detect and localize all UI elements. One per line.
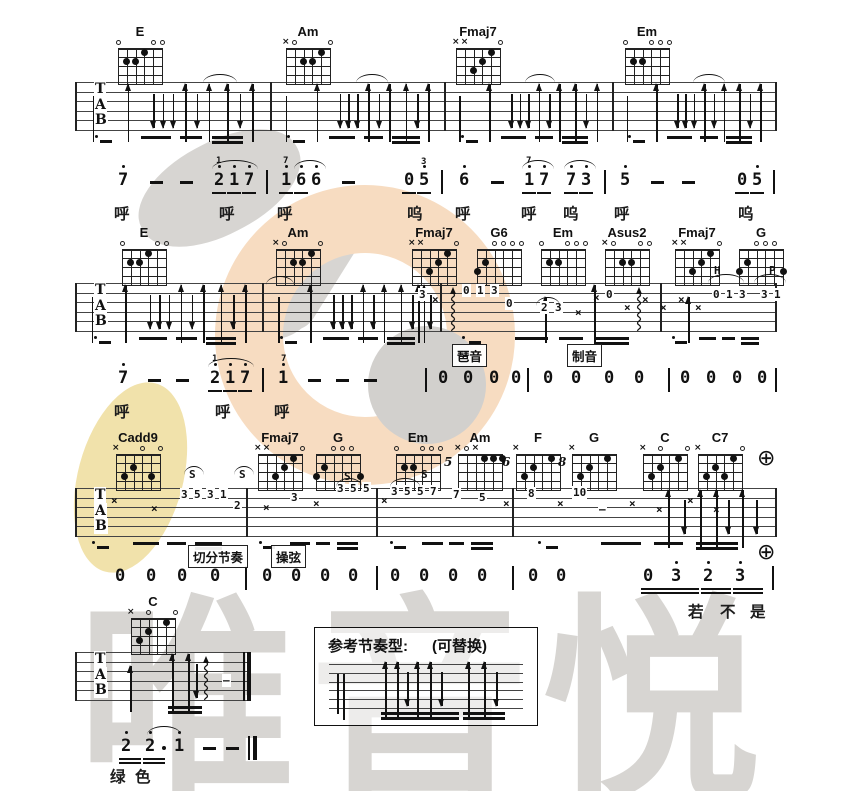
chord-grid-line — [605, 249, 650, 251]
tab-fret-number: 0 — [712, 288, 721, 301]
strum-arrow-down — [192, 295, 194, 329]
strum-arrow-up — [252, 84, 254, 142]
chord-dot — [604, 455, 611, 462]
open-string-mark — [318, 241, 323, 246]
beam — [471, 542, 493, 545]
rest-dot — [461, 135, 464, 138]
tab-letter: T — [94, 651, 106, 667]
mute-string-mark: × — [254, 443, 262, 453]
open-string-mark — [492, 241, 497, 246]
note-digit: 7 — [118, 172, 128, 189]
note-underline — [227, 192, 241, 194]
note-underline — [402, 192, 416, 194]
arrow-head — [360, 284, 366, 292]
chord-grid-line — [116, 490, 161, 491]
open-string-mark — [282, 241, 287, 246]
mute-string-mark: × — [694, 443, 702, 453]
open-string-mark — [510, 241, 515, 246]
tab-symbol: × — [659, 301, 668, 314]
rest-dash — [633, 140, 645, 143]
chord-grid-line — [286, 84, 331, 85]
rest-dash — [97, 546, 109, 549]
chord-grid-line — [572, 463, 617, 464]
note-digit: 6 — [311, 172, 321, 189]
note-underline — [417, 192, 431, 194]
note-barline — [245, 566, 247, 590]
rest-dash — [100, 140, 112, 143]
note-digit: 0 — [543, 370, 553, 387]
tab-fret-number: 3 — [290, 491, 299, 504]
chord-dot — [657, 464, 664, 471]
strum-arrow-down — [714, 94, 716, 128]
chord-dot — [321, 464, 328, 471]
chord-dot — [435, 259, 442, 266]
strum-arrow-down — [240, 94, 242, 128]
beam — [364, 136, 383, 139]
chord-grid-line — [605, 285, 650, 286]
note-digit: 0 — [320, 568, 330, 585]
chord-grid-line — [122, 249, 167, 251]
barline — [512, 488, 514, 537]
tab-symbol: × — [502, 497, 511, 510]
chord-dot — [490, 455, 497, 462]
note-digit: 1 — [229, 172, 239, 189]
octave-dot — [122, 363, 125, 366]
strum-arrow-down — [163, 94, 165, 128]
chord-dot — [132, 58, 139, 65]
arrow-head — [166, 322, 172, 330]
strum-arrow-down — [379, 94, 381, 128]
open-string-mark — [349, 446, 354, 451]
reference-note: (可替换) — [432, 635, 487, 656]
mute-string-mark: × — [417, 238, 425, 248]
chord-name: Em — [533, 225, 593, 240]
tab-symbol: × — [380, 494, 389, 507]
arrow-head — [194, 121, 200, 129]
open-string-mark — [685, 446, 690, 451]
lyric-syllable: 呼 — [219, 202, 235, 224]
open-string-mark — [667, 40, 672, 45]
note-underline — [701, 588, 731, 590]
note-digit: 5 — [419, 172, 429, 189]
note-digit: 0 — [757, 370, 767, 387]
note-digit: 0 — [556, 568, 566, 585]
lyric-syllable: 呼 — [614, 202, 630, 224]
open-string-mark — [519, 241, 524, 246]
chord-grid-line — [458, 463, 503, 464]
open-string-mark — [740, 446, 745, 451]
arrow-head — [376, 121, 382, 129]
chord-grid-line — [316, 472, 361, 473]
note-dash — [336, 379, 349, 382]
chord-dot — [698, 259, 705, 266]
open-string-mark — [116, 40, 121, 45]
chord-grid-line — [739, 249, 784, 251]
chord-grid-line — [116, 463, 161, 464]
staff-line — [329, 664, 523, 665]
tie-arc — [147, 726, 181, 735]
note-digit: 0 — [706, 370, 716, 387]
chord-grid-line — [412, 249, 457, 251]
arpeggio-squiggle — [449, 287, 457, 331]
arrow-head — [747, 121, 753, 129]
chord-dot — [410, 464, 417, 471]
strum-arrow-up — [559, 84, 561, 142]
rest-dash — [394, 546, 406, 549]
note-underline — [119, 758, 141, 760]
chord-dot — [780, 268, 787, 275]
note-underline — [143, 762, 165, 764]
chord-dot — [309, 58, 316, 65]
chord-grid-line — [456, 48, 501, 50]
arrow-head — [382, 661, 388, 669]
strum-arrow-up — [172, 654, 174, 712]
strum-arrow-down — [694, 94, 696, 128]
arrow-head — [674, 121, 680, 129]
strum-arrow-up — [742, 490, 744, 548]
tab-letter: T — [94, 487, 106, 503]
chord-grid-line — [316, 454, 361, 456]
chord-grid-line — [286, 75, 331, 76]
strum-arrow-up — [656, 84, 658, 142]
arrow-head — [681, 527, 687, 535]
beam — [696, 542, 738, 545]
lyric-syllable: 色 — [135, 765, 151, 787]
note-dash — [226, 747, 239, 750]
note-underline — [733, 592, 763, 594]
chord-grid-line — [698, 490, 743, 491]
strum-arrow-up — [724, 84, 726, 142]
chord-dot — [479, 58, 486, 65]
chord-grid-line — [122, 276, 167, 277]
staff-line — [75, 536, 775, 537]
strum-arrow-down — [357, 94, 359, 128]
arrow-head — [594, 83, 600, 91]
arrow-head — [200, 284, 206, 292]
final-barline-thin — [243, 652, 245, 701]
final-barline-thick — [247, 652, 251, 701]
open-string-mark — [155, 241, 160, 246]
tab-symbol: × — [110, 494, 119, 507]
rest-dot — [95, 135, 98, 138]
beam — [206, 342, 236, 345]
chord-dot — [281, 464, 288, 471]
rest-dash — [285, 341, 297, 344]
tab-symbol: × — [574, 306, 583, 319]
barline — [75, 82, 77, 131]
grace-note-digit: 1 — [212, 354, 217, 364]
lyric-syllable: 呜 — [738, 202, 754, 224]
strum-arrow-down — [528, 94, 530, 128]
open-string-mark — [292, 40, 297, 45]
tab-symbol: × — [312, 497, 321, 510]
arrow-head — [665, 489, 671, 497]
arrow-head — [685, 296, 691, 304]
strum-arrow-up — [389, 84, 391, 142]
arrow-head — [701, 83, 707, 91]
note-underline — [223, 390, 237, 392]
strum-arrow-down — [520, 94, 522, 128]
strum-arrow-up — [760, 84, 762, 142]
note-digit: 7 — [539, 172, 549, 189]
note-underline — [238, 390, 252, 392]
beam — [463, 717, 505, 720]
chord-dot — [163, 619, 170, 626]
strum-arrow-down — [153, 94, 155, 128]
mute-string-mark: × — [639, 443, 647, 453]
chord-grid-line — [258, 472, 303, 473]
tab-fret-number: — — [598, 503, 607, 516]
note-digit: 0 — [291, 568, 301, 585]
chord-dot — [426, 268, 433, 275]
open-string-mark — [754, 241, 759, 246]
note-dash — [180, 181, 193, 184]
open-string-mark — [623, 40, 628, 45]
open-string-mark — [565, 241, 570, 246]
strum-arrow-down — [373, 295, 375, 329]
note-underline — [735, 192, 749, 194]
rest-dash — [293, 140, 305, 143]
barline — [775, 82, 777, 131]
chord-grid-line — [625, 48, 670, 50]
lyric-syllable: 呜 — [563, 202, 579, 224]
tab-letter: A — [94, 298, 107, 314]
arrow-head — [739, 489, 745, 497]
note-digit: 7 — [240, 370, 250, 387]
tab-fret-number: 2 — [233, 499, 242, 512]
chord-grid-line — [276, 267, 321, 268]
note-digit: 0 — [528, 568, 538, 585]
octave-dot — [125, 731, 128, 734]
note-underline — [641, 592, 671, 594]
arrow-head — [414, 661, 420, 669]
arrow-head — [354, 121, 360, 129]
open-string-mark — [454, 241, 459, 246]
arrow-head — [425, 83, 431, 91]
note-digit: 1 — [278, 370, 288, 387]
beam — [726, 141, 752, 144]
slur-arc — [356, 74, 388, 83]
note-barline — [604, 170, 606, 194]
barline — [376, 488, 378, 537]
chord-grid-line — [516, 454, 561, 456]
arrow-head — [169, 653, 175, 661]
lyric-syllable: 是 — [750, 600, 766, 622]
chord-grid-line — [412, 276, 457, 277]
chord-dot — [145, 250, 152, 257]
mute-string-mark: × — [282, 37, 290, 47]
grace-note-digit: 7 — [281, 354, 286, 364]
tab-fret-number: 3 — [490, 284, 499, 297]
strum-arrow-down — [173, 94, 175, 128]
open-string-mark — [340, 446, 345, 451]
note-underline — [119, 762, 141, 764]
chord-grid-line — [456, 75, 501, 76]
strum-arrow-up — [221, 285, 223, 343]
chord-dot — [555, 259, 562, 266]
tab-letter: A — [94, 667, 107, 683]
note-digit: 0 — [404, 172, 414, 189]
strum-arrow-down — [586, 94, 588, 128]
octave-dot — [675, 561, 678, 564]
beam — [667, 136, 691, 139]
chord-grid-line — [675, 249, 720, 251]
chord-grid-line — [675, 258, 720, 259]
chord-grid-line — [116, 481, 161, 482]
note-digit: 7 — [118, 370, 128, 387]
strum-arrow-up — [384, 285, 386, 343]
strum-arrow-up — [539, 84, 541, 142]
beam — [699, 337, 716, 340]
rest-dash — [466, 140, 478, 143]
arrow-head — [427, 322, 433, 330]
chord-grid-line — [412, 258, 457, 259]
tab-symbol: × — [686, 494, 695, 507]
arrow-head — [736, 83, 742, 91]
beam — [741, 342, 759, 345]
note-dash — [148, 379, 161, 382]
note-digit: 0 — [604, 370, 614, 387]
chord-dot — [707, 250, 714, 257]
note-digit: 0 — [732, 370, 742, 387]
strum-arrow-down — [496, 672, 498, 706]
rest-dot — [628, 135, 631, 138]
strum-arrow-down — [169, 295, 171, 329]
beam — [133, 542, 159, 545]
chord-dot — [548, 455, 555, 462]
lyric-syllable: 呼 — [274, 400, 290, 422]
staff-line — [75, 120, 775, 121]
technique-label: 切分节奏 — [188, 545, 248, 568]
chord-grid-line — [458, 472, 503, 473]
strum-arrow-up — [575, 84, 577, 142]
note-barline — [527, 368, 529, 392]
chord-grid-line — [739, 285, 784, 286]
beam — [329, 136, 355, 139]
tab-fret-number: 0 — [462, 284, 471, 297]
chord-grid-line — [625, 66, 670, 67]
reference-title: 参考节奏型: — [328, 635, 408, 656]
chord-name: G6 — [469, 225, 529, 240]
tab-symbol: × — [677, 293, 686, 306]
note-digit: 0 — [177, 568, 187, 585]
arrow-head — [486, 83, 492, 91]
slur-arc — [390, 478, 420, 487]
tab-symbol: × — [150, 502, 159, 515]
chord-grid-line — [477, 276, 522, 277]
arrow-head — [218, 284, 224, 292]
open-string-mark — [464, 446, 469, 451]
strum-arrow-up — [716, 490, 718, 548]
open-string-mark — [501, 241, 506, 246]
staff-line — [329, 708, 523, 709]
chord-dot — [703, 473, 710, 480]
chord-name: E — [114, 225, 174, 240]
strum-arrow-down — [159, 295, 161, 329]
note-digit: 0 — [643, 568, 653, 585]
beam — [323, 337, 350, 340]
technique-label: 琶音 — [452, 344, 487, 367]
tie-arc — [564, 160, 596, 169]
beam — [700, 136, 718, 139]
note-barline — [262, 368, 264, 392]
note-digit: 0 — [115, 568, 125, 585]
note-digit: 2 — [214, 172, 224, 189]
grace-note-digit: 3 — [421, 157, 426, 167]
mute-string-mark: × — [472, 443, 480, 453]
note-underline — [733, 588, 763, 590]
arrow-head — [403, 83, 409, 91]
chord-dot — [577, 473, 584, 480]
tab-fret-number: 7 — [452, 488, 461, 501]
chord-dot — [736, 268, 743, 275]
tab-letter: A — [94, 503, 107, 519]
arrow-head — [178, 284, 184, 292]
arrow-head — [757, 83, 763, 91]
arrow-head — [185, 653, 191, 661]
strum-arrow-up — [739, 84, 741, 142]
arrow-head — [249, 83, 255, 91]
note-underline — [579, 192, 593, 194]
note-underline — [669, 592, 699, 594]
slur-arc — [234, 466, 254, 475]
chord-dot — [290, 455, 297, 462]
note-digit: 3 — [581, 172, 591, 189]
note-underline — [242, 192, 256, 194]
note-underline — [279, 192, 293, 194]
slur-arc — [693, 74, 725, 83]
barline — [612, 82, 614, 131]
slur-arc — [266, 276, 294, 285]
note-digit: 5 — [752, 172, 762, 189]
note-dash — [308, 379, 321, 382]
arrow-head — [230, 322, 236, 330]
strum-arrow-up — [245, 285, 247, 343]
beam — [535, 136, 553, 139]
beam — [139, 337, 167, 340]
barline — [75, 652, 77, 701]
tab-fret-number: 1 — [773, 288, 782, 301]
tab-symbol: × — [712, 503, 721, 516]
chord-dot — [530, 464, 537, 471]
chord-grid-line — [131, 645, 176, 646]
beam — [741, 337, 759, 340]
beam — [726, 136, 752, 139]
chord-grid-line — [675, 285, 720, 286]
strum-arrow-up — [401, 285, 403, 343]
chord-dot — [675, 455, 682, 462]
note-dash — [491, 181, 504, 184]
open-string-mark — [438, 446, 443, 451]
tab-letter: B — [94, 682, 108, 698]
grace-note-digit: 1 — [216, 156, 221, 166]
strum-arrow-up — [700, 490, 702, 548]
note-digit: 0 — [348, 568, 358, 585]
chord-dot — [357, 473, 364, 480]
tab-letter: B — [94, 313, 108, 329]
tab-fret-number: 5 — [478, 491, 487, 504]
chord-grid-line — [122, 267, 167, 268]
chord-grid-line — [456, 84, 501, 85]
note-barline — [266, 170, 268, 194]
arrow-head — [481, 661, 487, 669]
arrow-head — [404, 699, 410, 707]
note-digit: 0 — [146, 568, 156, 585]
slur-arc — [184, 466, 204, 475]
coda-icon: ⊕ — [757, 540, 775, 565]
chord-grid-line — [412, 267, 457, 268]
chord-grid-line — [456, 57, 501, 58]
